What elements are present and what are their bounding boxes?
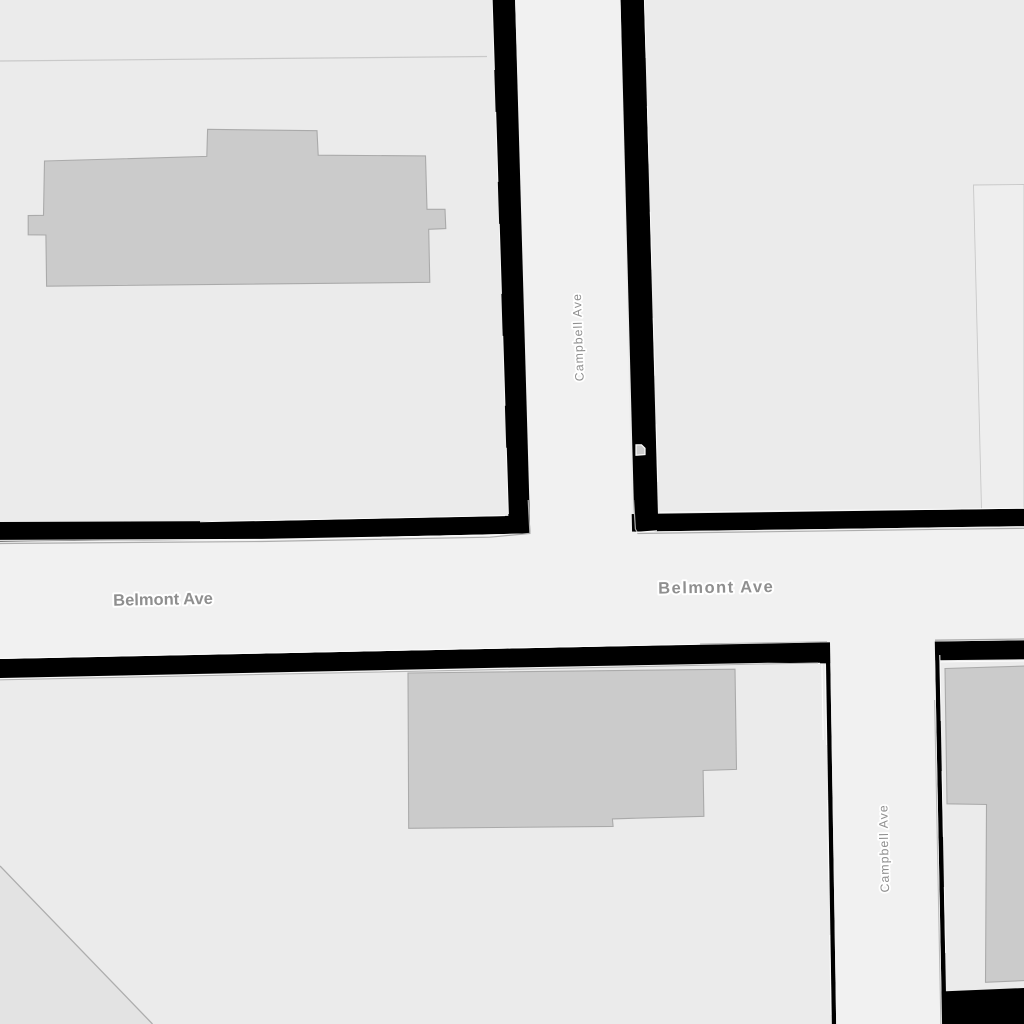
svg-text:Campbell Ave: Campbell Ave [876, 804, 892, 893]
svg-text:Belmont Ave: Belmont Ave [113, 590, 213, 610]
svg-text:Campbell Ave: Campbell Ave [570, 293, 587, 382]
svg-text:Belmont Ave: Belmont Ave [658, 578, 774, 598]
